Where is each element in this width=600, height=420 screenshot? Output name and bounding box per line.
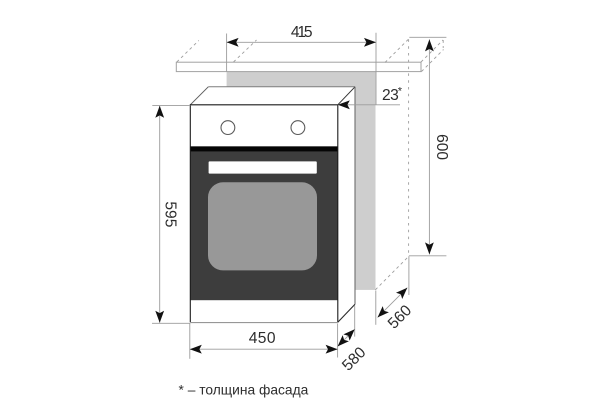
svg-text:23: 23: [382, 87, 398, 104]
svg-text:*: *: [398, 86, 403, 98]
svg-text:450: 450: [249, 330, 276, 347]
svg-text:415: 415: [291, 24, 313, 41]
svg-text:600: 600: [433, 134, 450, 160]
svg-text:* – толщина фасада: * – толщина фасада: [179, 382, 309, 397]
svg-text:595: 595: [162, 201, 179, 227]
